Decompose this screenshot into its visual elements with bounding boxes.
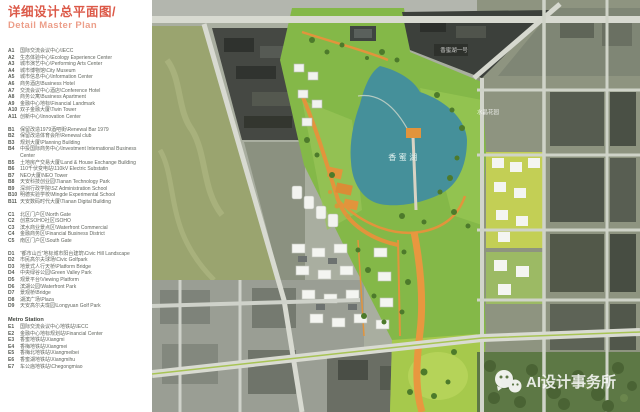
legend-item-text: 城市信息中心\Information Center [20, 74, 152, 81]
page: 详细设计总平面图/ Detail Master Plan A1国际交流会议中心\… [0, 0, 640, 412]
legend-item-code: D1 [8, 251, 20, 258]
legend-group-A: A1国际交流会议中心\IECCA2生态体验中心\Ecology Experien… [8, 48, 152, 121]
legend-item-A10: A10双子金融大厦\Twin Tower [8, 107, 152, 114]
building [514, 188, 526, 198]
legend-group-B: B1保留改造1979酒吧街\Renewal Bar 1979B2保留改造体育会所… [8, 127, 152, 206]
legend-item-E1: E1国际交流会议中心地铁站\IECC [8, 324, 152, 331]
legend-item-code: A8 [8, 94, 20, 101]
building [244, 116, 292, 128]
legend-item-code: D6 [8, 284, 20, 291]
legend-item-A1: A1国际交流会议中心\IECC [8, 48, 152, 55]
legend-item-text: 观景平台\Viewing Platform [20, 277, 152, 284]
legend-item-B4: B4中投国际商务中心\Investment International Busi… [8, 146, 152, 159]
building-row [610, 234, 636, 292]
legend-item-code: B7 [8, 173, 20, 180]
legend-item-code: B11 [8, 199, 20, 206]
legend-item-text: 双子金融大厦\Twin Tower [20, 107, 152, 114]
legend-item-code: E2 [8, 331, 20, 338]
legend-item-code: D3 [8, 264, 20, 271]
legend-item-code: E7 [8, 364, 20, 371]
legend-item-code: C2 [8, 218, 20, 225]
legend-item-code: A10 [8, 107, 20, 114]
legend-item-E7: E7车公庙地铁站\Chegongmiao [8, 364, 152, 371]
legend-item-A6: A6商务酒店\Business Hotel [8, 81, 152, 88]
legend-groups: A1国际交流会议中心\IECCA2生态体验中心\Ecology Experien… [8, 48, 152, 370]
legend-item-code: B9 [8, 186, 20, 193]
legend-item-code: C5 [8, 238, 20, 245]
tower [304, 196, 314, 209]
tower [302, 118, 312, 126]
legend-item-code: D5 [8, 277, 20, 284]
legend-panel: 详细设计总平面图/ Detail Master Plan A1国际交流会议中心\… [0, 0, 152, 412]
building [516, 216, 528, 226]
stadium-roof [354, 29, 372, 38]
legend-group-C: C1北区门户区\North GateC2创意SOHO社区\SOHOC3滨水商业景… [8, 212, 152, 245]
legend-item-code: E1 [8, 324, 20, 331]
legend-item-code: D8 [8, 297, 20, 304]
legend-item-B11: B11天安数码时代大厦\Tianan Digital Building [8, 199, 152, 206]
estate-label: 香蜜湖一号 [440, 46, 468, 54]
tower [292, 186, 302, 199]
legend-item-A11: A11创新中心\Innovation Center [8, 114, 152, 121]
legend-item-code: B3 [8, 140, 20, 147]
legend-item-D5: D5观景平台\Viewing Platform [8, 277, 152, 284]
legend-item-A8: A8商务公寓\Business Apartment [8, 94, 152, 101]
legend-item-code: A7 [8, 88, 20, 95]
legend-item-code: B1 [8, 127, 20, 134]
legend-item-text: 中投国际商务中心\Investment International Busine… [20, 146, 152, 159]
legend-item-text: 香梅北地铁站\Xiangmeibei [20, 350, 152, 357]
building [236, 66, 276, 79]
building [496, 210, 508, 220]
building [494, 182, 506, 192]
legend-item-text: 商务公寓\Business Apartment [20, 94, 152, 101]
building-row [550, 234, 604, 292]
north-road [152, 16, 640, 23]
legend-item-text: 天安数码时代大厦\Tianan Digital Building [20, 199, 152, 206]
legend-item-text: 车公庙地铁站\Chegongmiao [20, 364, 152, 371]
building [338, 360, 368, 380]
watermark-text: AI设计事务所 [526, 373, 616, 391]
legend-item-D2: D2市民高尔夫球场\Civic Golfpark [8, 257, 152, 264]
building-row [550, 92, 604, 146]
legend-item-code: B8 [8, 179, 20, 186]
building-row [550, 304, 604, 350]
lake-label: 香蜜湖 [388, 152, 420, 162]
legend-item-E3: E3香蜜地铁站\Xiangmi [8, 337, 152, 344]
legend-item-A3: A3城市演艺中心\Performing Arts Center [8, 61, 152, 68]
building-row [610, 158, 636, 222]
legend-item-text: 国际交流会议中心\IECC [20, 48, 152, 55]
legend-item-code: A6 [8, 81, 20, 88]
legend-group-E: Metro StationE1国际交流会议中心地铁站\IECCE2金融中心地标规… [8, 316, 152, 370]
legend-item-B8: B8天安科技创业园\Tianan Technology Park [8, 179, 152, 186]
legend-item-E5: E5香梅北地铁站\Xiangmeibei [8, 350, 152, 357]
legend-item-text: 香蜜地铁站\Xiangmi [20, 337, 152, 344]
legend-item-code: B5 [8, 160, 20, 167]
legend-item-D9: D9天安高尔夫珑园\Longyuan Golf Park [8, 303, 152, 310]
legend-item-code: B10 [8, 192, 20, 199]
legend-item-code: B4 [8, 146, 20, 159]
legend-item-code: D4 [8, 270, 20, 277]
legend-item-text: 国际交流会议中心地铁站\IECC [20, 324, 152, 331]
legend-item-C5: C5南区门户区\South Gate [8, 238, 152, 245]
tower [316, 206, 326, 219]
building-row [610, 304, 636, 350]
legend-item-text: 景观桥\Bridge [20, 290, 152, 297]
legend-item-code: B2 [8, 133, 20, 140]
building [528, 158, 540, 168]
building [498, 232, 510, 242]
legend-item-text: 创意SOHO社区\SOHO [20, 218, 152, 225]
legend-item-code: C1 [8, 212, 20, 219]
building [510, 162, 522, 172]
legend-item-code: C4 [8, 231, 20, 238]
tower [294, 64, 304, 72]
building [492, 158, 504, 168]
legend-item-text: 中央绿谷公园\Green Valley Park [20, 270, 152, 277]
page-title-en: Detail Master Plan [8, 20, 152, 31]
crystal-garden-label: 水晶花园 [477, 108, 500, 116]
legend-item-code: E6 [8, 357, 20, 364]
legend-item-text: 创新中心\Innovation Center [20, 114, 152, 121]
legend-item-text: 城市演艺中心\Performing Arts Center [20, 61, 152, 68]
legend-item-B2: B2保留改造体育会所\Renewal club [8, 133, 152, 140]
legend-item-code: A5 [8, 74, 20, 81]
tower [328, 214, 338, 227]
page-title-zh: 详细设计总平面图/ [8, 5, 152, 19]
building [494, 260, 507, 271]
legend-item-B6: B6110千伏变电站\110kV Electric Substatin [8, 166, 152, 173]
legend-item-code: A1 [8, 48, 20, 55]
legend-item-code: A11 [8, 114, 20, 121]
legend-item-A5: A5城市信息中心\Information Center [8, 74, 152, 81]
legend-item-text: 110千伏变电站\110kV Electric Substatin [20, 166, 152, 173]
tower [312, 100, 322, 108]
legend-item-text: 市民高尔夫球场\Civic Golfpark [20, 257, 152, 264]
legend-item-D4: D4中央绿谷公园\Green Valley Park [8, 270, 152, 277]
legend-item-text: 保留改造体育会所\Renewal club [20, 133, 152, 140]
legend-item-code: A2 [8, 55, 20, 62]
building [498, 284, 511, 295]
legend-item-code: B6 [8, 166, 20, 173]
legend-group-D: D1“都市山丘”地标城市阳台建筑\Civic Hill LandscapeD2市… [8, 251, 152, 310]
legend-group-header: Metro Station [8, 316, 152, 324]
bridge-plaza [406, 128, 421, 138]
building-row [610, 92, 636, 146]
legend-item-E6: E6香蜜湖地铁站\Xiangmihu [8, 357, 152, 364]
building [456, 26, 486, 38]
legend-item-code: E4 [8, 344, 20, 351]
legend-item-code: D9 [8, 303, 20, 310]
tower [298, 90, 308, 98]
legend-item-text: 天安高尔夫珑园\Longyuan Golf Park [20, 303, 152, 310]
legend-item-code: E3 [8, 337, 20, 344]
legend-item-code: C3 [8, 225, 20, 232]
master-plan-map: 香蜜湖 香蜜湖一号 水晶花园 AI设计事务所 [152, 0, 640, 412]
legend-item-text: 香蜜湖地铁站\Xiangmihu [20, 357, 152, 364]
east-planned-blocks2 [486, 252, 544, 304]
legend-item-code: E5 [8, 350, 20, 357]
tower [308, 72, 318, 80]
building [516, 266, 529, 277]
legend-item-C2: C2创意SOHO社区\SOHO [8, 218, 152, 225]
legend-item-code: A4 [8, 68, 20, 75]
legend-item-D7: D7景观桥\Bridge [8, 290, 152, 297]
legend-item-code: D7 [8, 290, 20, 297]
legend-item-text: 天安科技创业园\Tianan Technology Park [20, 179, 152, 186]
legend-item-code: A9 [8, 101, 20, 108]
legend-item-code: D2 [8, 257, 20, 264]
building [224, 38, 254, 52]
legend-item-code: A3 [8, 61, 20, 68]
building-row [550, 158, 604, 222]
building [252, 92, 294, 106]
legend-item-text: 南区门户区\South Gate [20, 238, 152, 245]
map-graphic: 香蜜湖 香蜜湖一号 水晶花园 AI设计事务所 [152, 0, 640, 412]
legend-item-text: 商务酒店\Business Hotel [20, 81, 152, 88]
